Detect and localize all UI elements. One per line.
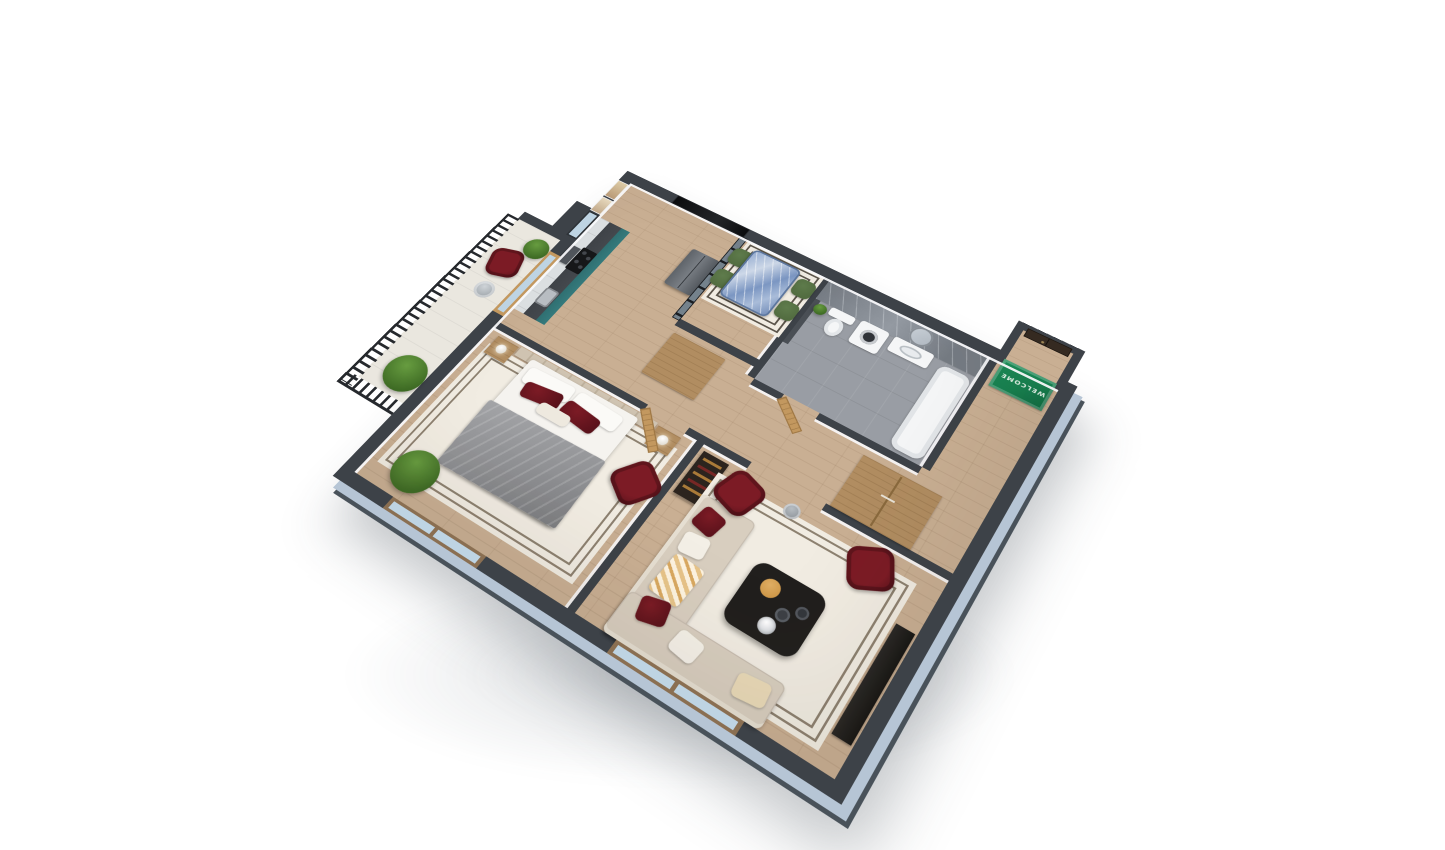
living-armchair-right <box>846 545 894 592</box>
floorplan-render: WELCOME <box>0 0 1445 850</box>
scene-tilt: WELCOME <box>445 195 985 665</box>
welcome-mat-text: WELCOME <box>999 371 1047 398</box>
